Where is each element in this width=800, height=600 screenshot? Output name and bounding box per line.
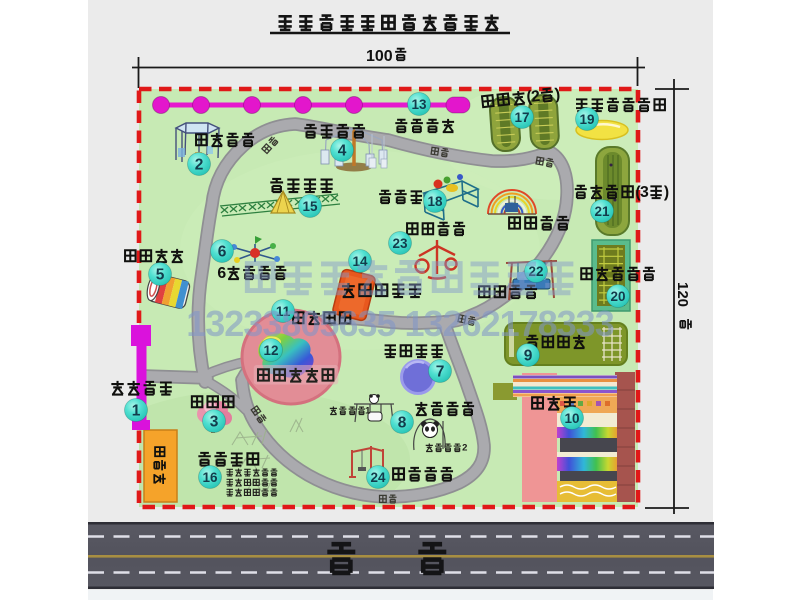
- svg-text:12: 12: [263, 343, 278, 358]
- svg-text:17: 17: [514, 110, 529, 125]
- svg-text:7: 7: [436, 364, 445, 381]
- svg-text:3: 3: [210, 414, 219, 431]
- svg-text:9: 9: [524, 348, 533, 365]
- svg-text:21: 21: [594, 204, 610, 219]
- svg-text:1: 1: [365, 406, 371, 417]
- svg-text:2: 2: [462, 443, 467, 454]
- svg-text:20: 20: [610, 289, 625, 304]
- svg-text:19: 19: [579, 112, 594, 127]
- svg-text:15: 15: [302, 199, 318, 214]
- svg-text:3: 3: [640, 184, 649, 201]
- svg-text:18: 18: [427, 194, 443, 209]
- svg-text:6: 6: [218, 244, 227, 261]
- svg-text:6: 6: [217, 265, 226, 282]
- svg-text:8: 8: [398, 415, 407, 432]
- svg-text:5: 5: [156, 267, 165, 284]
- svg-text:1: 1: [132, 403, 141, 420]
- svg-text:10: 10: [564, 411, 579, 426]
- svg-text:16: 16: [202, 470, 218, 485]
- svg-text:100: 100: [366, 48, 393, 65]
- svg-text:13233805635 13262178333: 13233805635 13262178333: [186, 303, 613, 344]
- svg-text:13: 13: [411, 97, 427, 112]
- svg-text:24: 24: [370, 470, 386, 485]
- svg-text:23: 23: [392, 236, 408, 251]
- svg-text:4: 4: [338, 143, 347, 160]
- svg-text:2: 2: [195, 157, 204, 174]
- svg-text:): ): [664, 184, 669, 201]
- svg-text:120: 120: [674, 282, 691, 307]
